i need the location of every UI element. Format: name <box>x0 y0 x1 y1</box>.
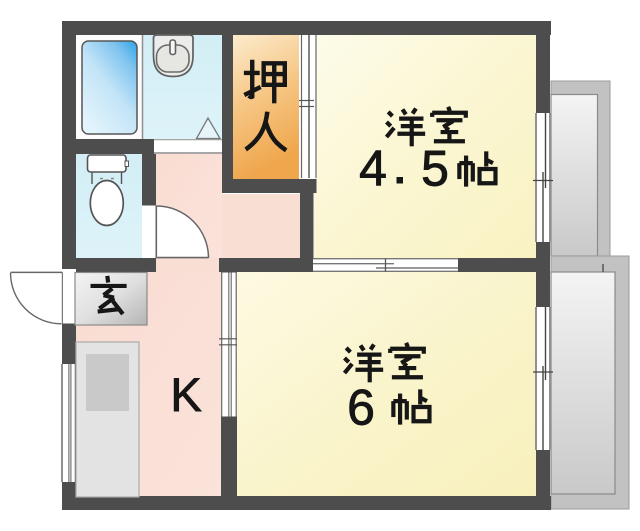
svg-text:4: 4 <box>359 141 387 197</box>
svg-text:5: 5 <box>421 141 449 197</box>
svg-text:6: 6 <box>347 380 375 436</box>
svg-text:K: K <box>170 368 201 421</box>
